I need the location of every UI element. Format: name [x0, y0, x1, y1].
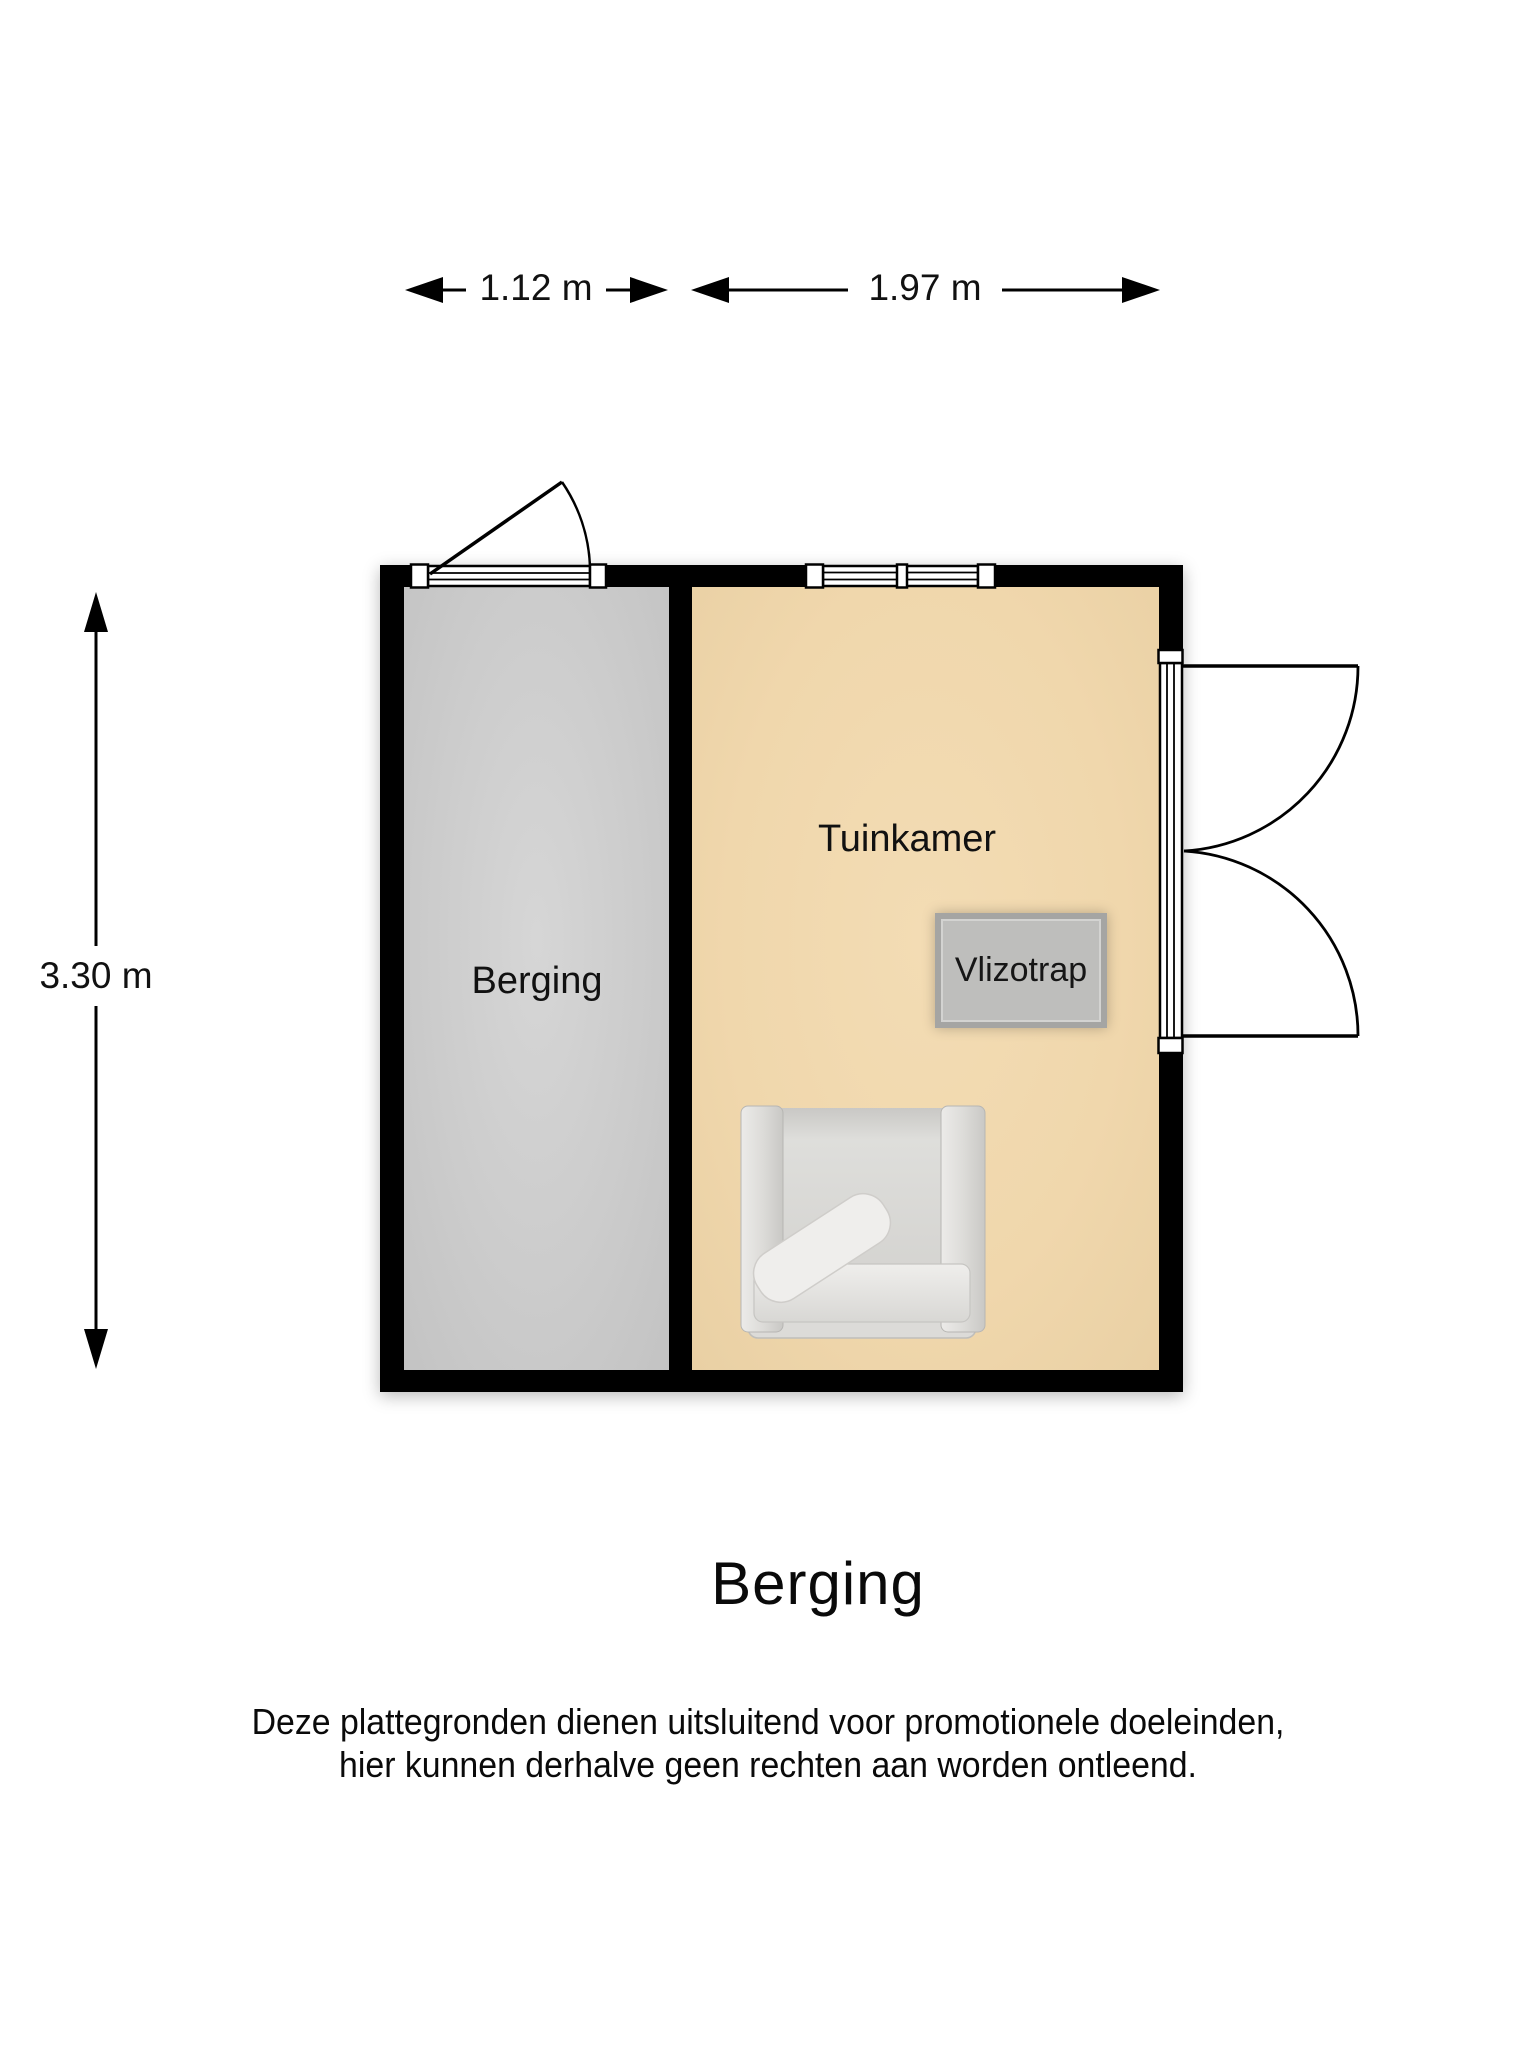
- vlizotrap-label: Vlizotrap: [955, 951, 1087, 990]
- door-swing-arc-upper: [1184, 666, 1358, 851]
- door-leaf: [430, 482, 562, 574]
- tuinkamer-window: [806, 565, 995, 588]
- tuinkamer-double-door: [1159, 650, 1359, 1053]
- dimension-arrow-height: [84, 592, 108, 1369]
- dimension-arrow-tuinkamer: [691, 277, 1160, 303]
- armchair: [741, 1106, 985, 1338]
- berging-door: [411, 482, 606, 588]
- disclaimer-line-1: Deze plattegronden dienen uitsluitend vo…: [110, 1700, 1426, 1743]
- room-label-berging: Berging: [407, 958, 667, 1004]
- vlizotrap-hatch: Vlizotrap: [935, 913, 1107, 1028]
- door-swing-arc: [562, 482, 590, 566]
- plan-title: Berging: [468, 1540, 1168, 1628]
- floorplan-page: 1.12 m 1.97 m 3.30 m: [0, 0, 1536, 2048]
- door-swing-arc-lower: [1184, 851, 1358, 1036]
- room-label-tuinkamer: Tuinkamer: [777, 816, 1037, 862]
- disclaimer: Deze plattegronden dienen uitsluitend vo…: [110, 1700, 1426, 1786]
- dimension-arrow-berging: [405, 277, 668, 303]
- disclaimer-line-2: hier kunnen derhalve geen rechten aan wo…: [110, 1743, 1426, 1786]
